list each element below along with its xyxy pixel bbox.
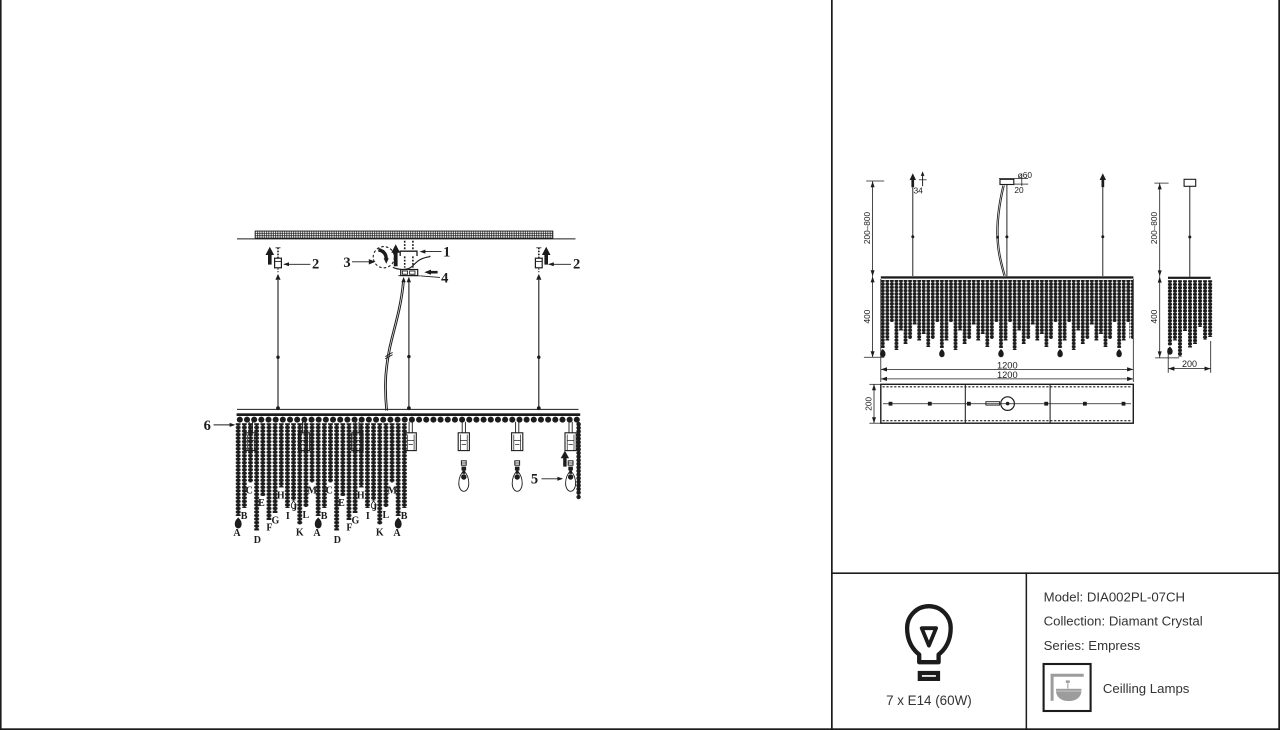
svg-text:M: M: [307, 486, 317, 497]
svg-text:Ceilling Lamps: Ceilling Lamps: [1103, 681, 1190, 696]
svg-text:400: 400: [1149, 309, 1159, 323]
svg-text:6: 6: [204, 418, 211, 434]
svg-text:K: K: [296, 527, 304, 538]
svg-text:A: A: [393, 528, 401, 539]
svg-text:7 x E14 (60W): 7 x E14 (60W): [886, 693, 972, 708]
svg-text:34: 34: [913, 185, 923, 195]
svg-text:400: 400: [862, 309, 872, 323]
svg-text:G: G: [272, 516, 280, 527]
svg-text:E: E: [258, 498, 265, 509]
svg-text:L: L: [302, 510, 309, 521]
svg-text:D: D: [334, 535, 341, 546]
svg-text:J: J: [292, 503, 297, 514]
svg-text:1200: 1200: [997, 360, 1018, 370]
svg-text:M: M: [387, 486, 397, 497]
svg-text:Collection: Diamant Crystal: Collection: Diamant Crystal: [1044, 614, 1203, 629]
svg-text:B: B: [321, 511, 328, 522]
svg-text:K: K: [376, 527, 384, 538]
svg-text:A: A: [313, 528, 321, 539]
svg-text:200: 200: [863, 396, 873, 410]
svg-text:C: C: [326, 486, 333, 497]
svg-text:3: 3: [343, 255, 350, 271]
svg-text:200: 200: [1182, 359, 1197, 369]
svg-text:Model: DIA002PL-07CH: Model: DIA002PL-07CH: [1044, 589, 1185, 604]
svg-text:1200: 1200: [997, 370, 1018, 380]
svg-text:Series: Empress: Series: Empress: [1044, 638, 1141, 653]
svg-text:I: I: [366, 511, 370, 522]
svg-text:I: I: [286, 511, 290, 522]
svg-text:D: D: [254, 535, 261, 546]
svg-text:5: 5: [531, 471, 538, 487]
svg-text:C: C: [246, 486, 253, 497]
svg-text:H: H: [277, 491, 285, 502]
svg-text:B: B: [401, 511, 408, 522]
svg-text:E: E: [338, 498, 345, 509]
svg-text:2: 2: [312, 257, 319, 273]
svg-text:ø60: ø60: [1018, 170, 1033, 180]
svg-text:G: G: [352, 516, 360, 527]
svg-text:B: B: [241, 511, 248, 522]
svg-text:L: L: [382, 510, 389, 521]
svg-text:4: 4: [441, 270, 448, 286]
svg-text:200–800: 200–800: [862, 211, 872, 244]
svg-text:2: 2: [573, 257, 580, 273]
svg-text:1: 1: [443, 244, 450, 260]
svg-text:A: A: [233, 528, 241, 539]
svg-text:200–800: 200–800: [1149, 211, 1159, 244]
svg-text:H: H: [357, 491, 365, 502]
svg-text:20: 20: [1014, 185, 1024, 195]
svg-text:J: J: [372, 503, 377, 514]
